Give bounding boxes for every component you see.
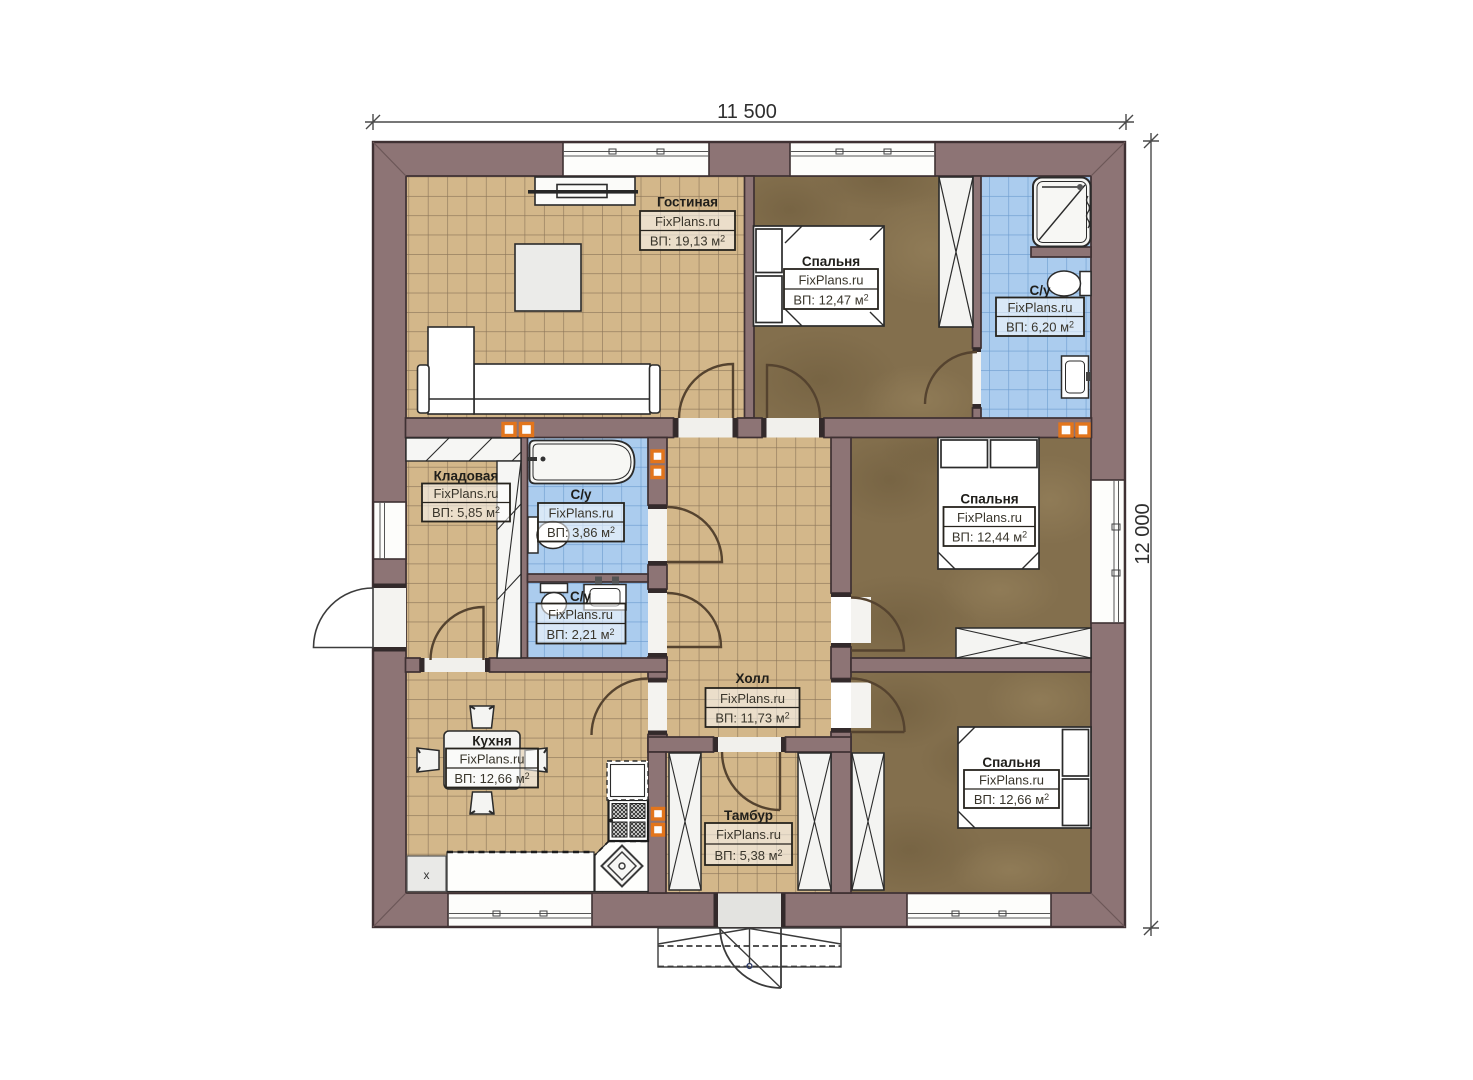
svg-text:ВП: 5,38 м2: ВП: 5,38 м2 <box>714 848 782 863</box>
svg-text:FixPlans.ru: FixPlans.ru <box>459 752 524 767</box>
svg-text:ВП: 12,66 м2: ВП: 12,66 м2 <box>454 771 529 786</box>
svg-text:FixPlans.ru: FixPlans.ru <box>720 691 785 706</box>
svg-text:ВП: 6,20 м2: ВП: 6,20 м2 <box>1006 320 1074 335</box>
svg-text:Тамбур: Тамбур <box>724 808 773 823</box>
svg-text:Спальня: Спальня <box>960 492 1018 507</box>
svg-text:Спальня: Спальня <box>802 254 860 269</box>
svg-text:ВП: 11,73 м2: ВП: 11,73 м2 <box>715 711 789 726</box>
svg-text:ВП: 12,44 м2: ВП: 12,44 м2 <box>952 530 1027 545</box>
svg-text:FixPlans.ru: FixPlans.ru <box>957 510 1022 525</box>
svg-text:Кладовая: Кладовая <box>434 469 499 484</box>
svg-text:FixPlans.ru: FixPlans.ru <box>716 827 781 842</box>
svg-text:12 000: 12 000 <box>1132 503 1154 564</box>
svg-text:ВП: 12,66 м2: ВП: 12,66 м2 <box>974 792 1049 807</box>
svg-text:ВП: 5,85 м2: ВП: 5,85 м2 <box>432 505 500 520</box>
svg-text:Кухня: Кухня <box>472 734 511 749</box>
svg-text:FixPlans.ru: FixPlans.ru <box>433 486 498 501</box>
svg-text:Спальня: Спальня <box>982 755 1040 770</box>
svg-text:11 500: 11 500 <box>717 101 777 123</box>
svg-text:FixPlans.ru: FixPlans.ru <box>1007 300 1072 315</box>
svg-text:FixPlans.ru: FixPlans.ru <box>548 506 613 521</box>
svg-text:Холл: Холл <box>736 671 770 686</box>
svg-text:FixPlans.ru: FixPlans.ru <box>979 773 1044 788</box>
svg-text:FixPlans.ru: FixPlans.ru <box>798 273 863 288</box>
svg-text:Гостиная: Гостиная <box>657 195 718 210</box>
svg-text:С/у: С/у <box>570 487 592 502</box>
svg-text:ВП: 12,47 м2: ВП: 12,47 м2 <box>793 293 868 308</box>
svg-text:ВП: 2,21 м2: ВП: 2,21 м2 <box>546 627 614 642</box>
svg-text:ВП: 3,86 м2: ВП: 3,86 м2 <box>547 525 615 540</box>
svg-text:С/у: С/у <box>570 589 592 604</box>
svg-text:FixPlans.ru: FixPlans.ru <box>655 214 720 229</box>
svg-text:x: x <box>424 868 430 882</box>
svg-text:ВП: 19,13 м2: ВП: 19,13 м2 <box>650 234 725 249</box>
svg-text:С/у: С/у <box>1029 283 1051 298</box>
svg-text:FixPlans.ru: FixPlans.ru <box>548 607 613 622</box>
